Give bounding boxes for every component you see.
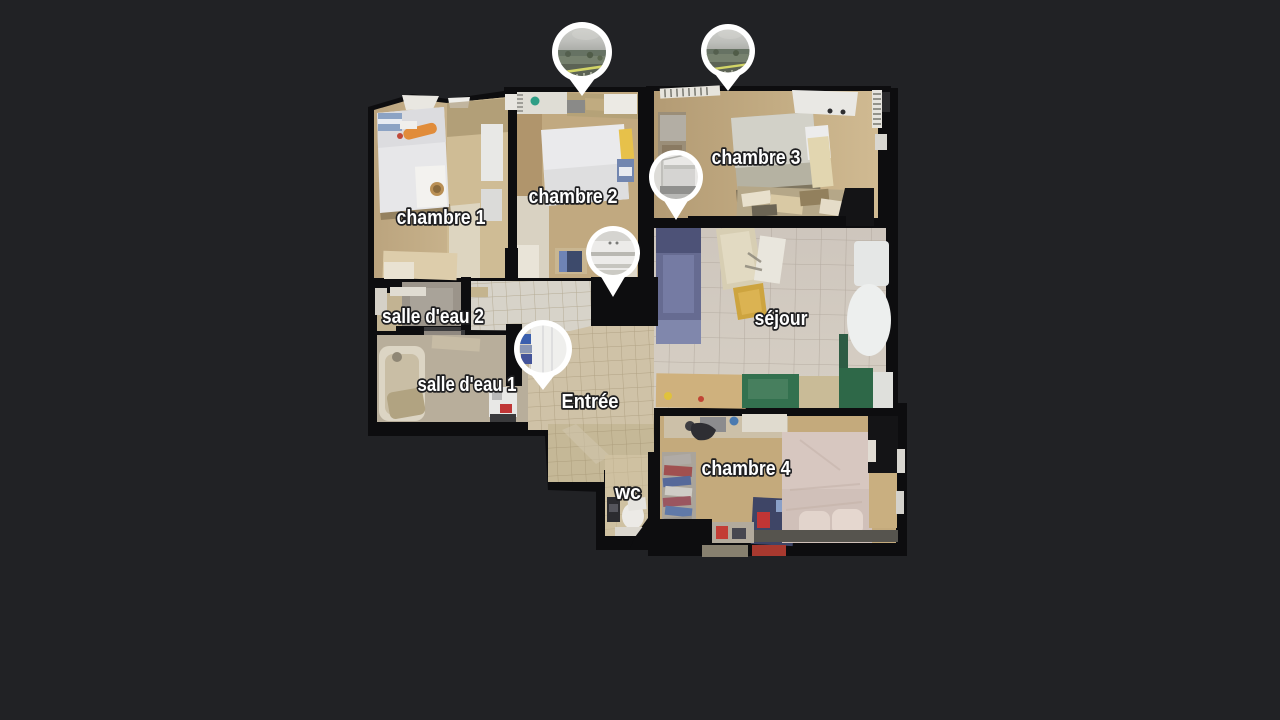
svg-text:salle d'eau 2: salle d'eau 2 [382, 305, 484, 328]
svg-text:wc: wc [614, 481, 641, 504]
svg-text:salle d'eau 1: salle d'eau 1 [418, 373, 517, 396]
svg-text:séjour: séjour [755, 307, 808, 330]
svg-text:chambre 2: chambre 2 [529, 185, 618, 208]
svg-text:Entrée: Entrée [562, 390, 619, 413]
svg-text:chambre 1: chambre 1 [397, 206, 486, 229]
svg-text:chambre 3: chambre 3 [712, 146, 801, 169]
svg-text:chambre 4: chambre 4 [702, 457, 792, 480]
